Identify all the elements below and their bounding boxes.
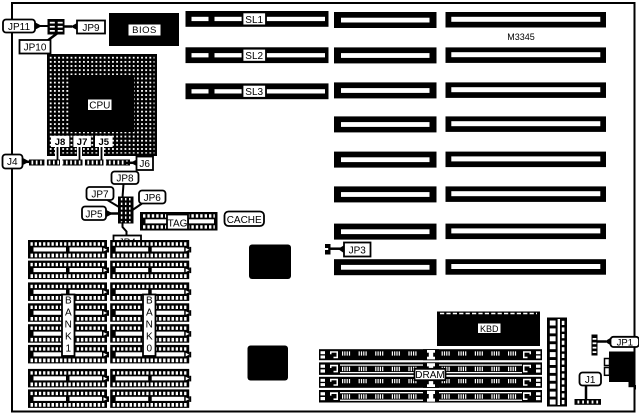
- svg-text:J5: J5: [99, 137, 110, 148]
- svg-text:J4: J4: [7, 157, 18, 168]
- svg-text:A: A: [65, 308, 72, 319]
- svg-text:SL3: SL3: [245, 87, 263, 98]
- svg-text:JP3: JP3: [349, 246, 367, 257]
- svg-text:SL1: SL1: [245, 15, 263, 26]
- svg-text:TAG: TAG: [168, 219, 188, 230]
- svg-text:CACHE: CACHE: [227, 215, 262, 226]
- svg-text:JP8: JP8: [116, 174, 134, 185]
- svg-text:N: N: [146, 320, 153, 331]
- svg-text:B: B: [65, 296, 72, 307]
- svg-text:K: K: [146, 332, 153, 343]
- svg-text:JP9: JP9: [82, 23, 100, 34]
- svg-text:1: 1: [66, 344, 72, 355]
- svg-text:JP1: JP1: [617, 337, 633, 348]
- svg-text:JP7: JP7: [91, 189, 109, 200]
- svg-text:J7: J7: [77, 137, 88, 148]
- svg-text:N: N: [65, 320, 72, 331]
- svg-text:J6: J6: [139, 159, 150, 170]
- svg-text:J1: J1: [585, 375, 596, 386]
- svg-text:JP10: JP10: [24, 43, 47, 54]
- svg-text:JP6: JP6: [144, 193, 162, 204]
- svg-text:J8: J8: [55, 137, 66, 148]
- svg-text:SL2: SL2: [245, 51, 263, 62]
- svg-text:CPU: CPU: [89, 101, 110, 112]
- svg-text:B: B: [146, 296, 153, 307]
- svg-text:M3345: M3345: [507, 32, 535, 42]
- svg-text:A: A: [146, 308, 153, 319]
- svg-text:0: 0: [147, 344, 153, 355]
- svg-text:K: K: [65, 332, 72, 343]
- svg-text:KBD: KBD: [480, 324, 499, 334]
- svg-text:JP11: JP11: [8, 22, 30, 33]
- svg-text:BIOS: BIOS: [132, 25, 157, 36]
- svg-text:DRAM: DRAM: [415, 370, 444, 381]
- svg-text:JP5: JP5: [85, 209, 103, 220]
